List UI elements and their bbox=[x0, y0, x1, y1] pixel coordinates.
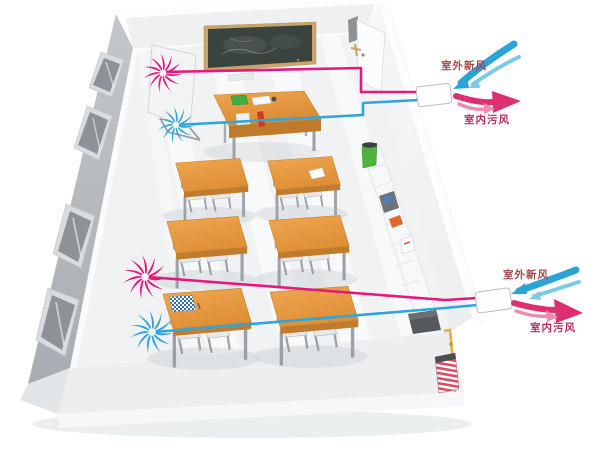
ink-bottle bbox=[272, 97, 277, 102]
vent-unit-top bbox=[416, 83, 452, 107]
white-box bbox=[236, 113, 250, 125]
door-handle bbox=[361, 53, 364, 56]
classroom-illustration: 室外新风 室内污风 室外新风 室内污风 bbox=[0, 0, 611, 458]
radiator bbox=[435, 353, 459, 393]
green-book bbox=[231, 95, 248, 105]
classroom-ventilation-diagram: 室外新风 室内污风 室外新风 室内污风 bbox=[0, 0, 611, 458]
blackboard bbox=[204, 22, 316, 72]
fresh-air-label-bottom: 室外新风 bbox=[503, 268, 549, 281]
vent-unit-bottom bbox=[475, 288, 513, 314]
exhaust-air-label-top: 室内污风 bbox=[464, 113, 510, 126]
trash-can bbox=[362, 142, 377, 168]
exhaust-air-label-bottom: 室内污风 bbox=[530, 321, 576, 334]
dark-cabinet bbox=[408, 310, 441, 334]
fresh-air-label-top: 室外新风 bbox=[441, 59, 487, 72]
